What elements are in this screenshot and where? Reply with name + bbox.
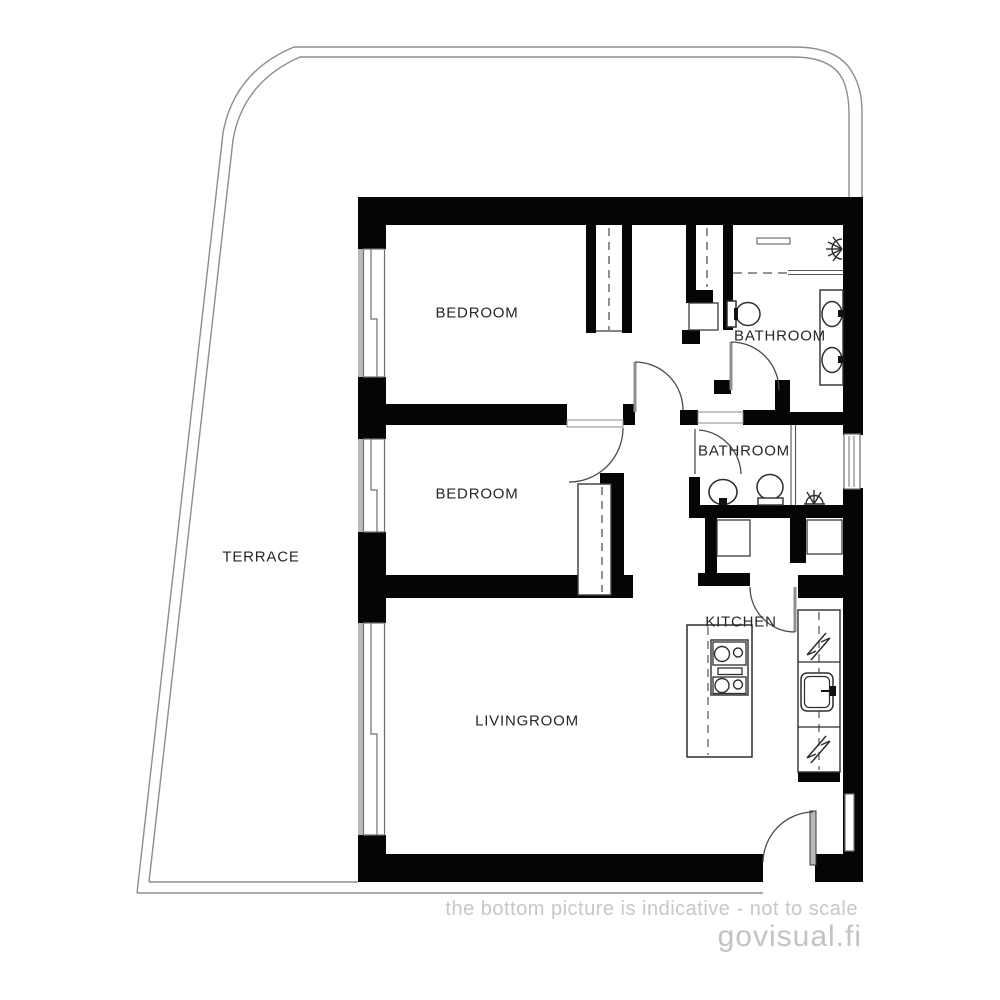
window-bedroom-middle: [358, 439, 385, 532]
door-entrance: [763, 811, 816, 865]
bathroom-middle-label: BATHROOM: [698, 443, 790, 460]
door-hall-nook: [635, 362, 683, 412]
terrace-outline: [137, 47, 862, 893]
window-entry-sidelight: [845, 794, 854, 851]
stove-icon: [711, 640, 748, 695]
livingroom-label: LIVINGROOM: [475, 713, 579, 730]
kitchen-label: KITCHEN: [705, 614, 776, 631]
door-bathroom-top: [731, 342, 779, 390]
bedroom-top-label: BEDROOM: [435, 305, 518, 322]
shower-head-icon: [826, 237, 842, 261]
shower-partition: [791, 425, 796, 505]
toilet-icon-bathroom-top: [727, 301, 760, 327]
closet-hall-right: [807, 520, 842, 554]
window-bathroom-middle: [844, 434, 860, 489]
disclaimer-text: the bottom picture is indicative - not t…: [445, 898, 858, 921]
wardrobe-bedroom-top: [596, 228, 622, 331]
door-bedroom-middle: [567, 420, 623, 482]
round-sink-icon: [709, 480, 737, 506]
wardrobe-bedroom-middle: [578, 484, 611, 595]
floorplan-canvas: TERRACE BEDROOM BATHROOM BEDROOM BATHROO…: [0, 0, 1000, 1000]
shower-screen-bathroom-top: [733, 238, 843, 275]
watermark-text: govisual.fi: [718, 920, 862, 954]
toilet-icon-bathroom-middle: [757, 475, 783, 506]
terrace-label: TERRACE: [222, 549, 299, 566]
floor-drain-icon: [804, 490, 825, 504]
bathroom-top-label: BATHROOM: [734, 328, 826, 345]
closet-hall-left: [717, 520, 750, 556]
window-livingroom: [358, 623, 385, 835]
window-bedroom-top: [358, 249, 385, 377]
kitchen-sink-icon: [801, 673, 836, 711]
bedroom-middle-label: BEDROOM: [435, 486, 518, 503]
